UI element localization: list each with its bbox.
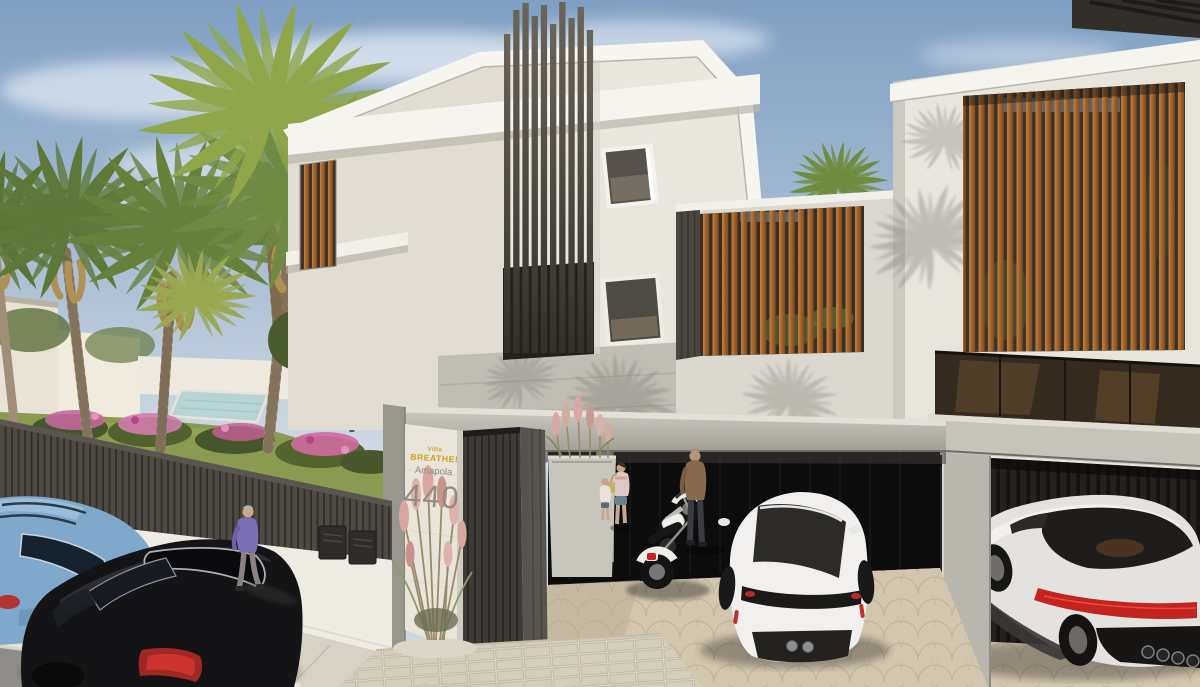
porsche-mirror-right [849,526,861,534]
render-canvas: Villa BREATHE! Amapola 440 [0,0,1200,687]
balcony-screen-wall [676,190,900,452]
man-jacket [685,460,707,500]
window-lower [601,274,665,347]
right-carport [940,430,1200,687]
timber-screen-right [963,82,1185,352]
purple-jacket [237,517,259,552]
window-upper [601,143,659,208]
porsche-mirror-left [718,518,730,526]
scene [0,0,1200,687]
pool [170,390,268,422]
woman-top [613,472,629,496]
left-wing-louver-window [300,160,336,270]
timber-balcony-screen [700,206,864,356]
moto-taillight [647,553,656,560]
porsche-diffuser [752,630,852,662]
